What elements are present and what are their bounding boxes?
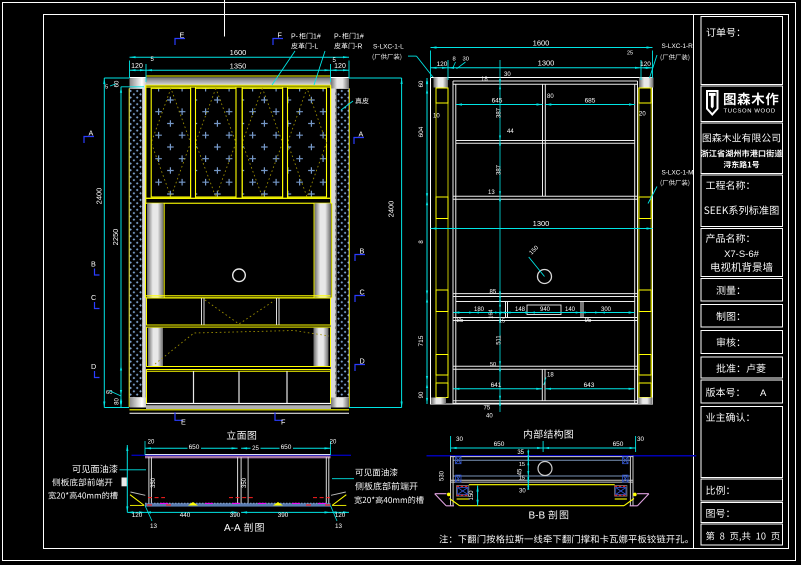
svg-text:604: 604 [418, 126, 425, 137]
svg-text:X7-S-6#: X7-S-6# [724, 249, 760, 260]
svg-text:1350: 1350 [230, 62, 247, 71]
svg-text:387: 387 [497, 164, 503, 175]
svg-text:75: 75 [484, 406, 491, 412]
svg-text:S-LXC-1-R: S-LXC-1-R [662, 43, 694, 50]
svg-text:44: 44 [507, 129, 514, 135]
svg-text:1#: 1# [356, 34, 364, 41]
svg-text:85: 85 [457, 318, 464, 324]
svg-text:2250: 2250 [111, 229, 120, 246]
svg-text:40: 40 [486, 414, 493, 420]
svg-text:25: 25 [627, 51, 633, 57]
svg-text:10: 10 [433, 114, 440, 120]
svg-text:1#: 1# [313, 34, 321, 41]
svg-text:A: A [359, 129, 364, 138]
svg-text:-R: -R [355, 44, 362, 51]
svg-text:P-: P- [334, 34, 342, 41]
svg-text:85: 85 [490, 290, 497, 296]
svg-text:60: 60 [419, 80, 425, 87]
svg-text:18: 18 [547, 373, 554, 379]
svg-text:B: B [360, 246, 365, 255]
svg-text:80: 80 [547, 94, 554, 100]
svg-text:390: 390 [278, 512, 289, 519]
svg-text:650: 650 [613, 441, 624, 448]
svg-text:8: 8 [453, 57, 456, 63]
svg-text:13: 13 [150, 523, 158, 530]
svg-text:95: 95 [585, 318, 592, 324]
svg-text:5: 5 [105, 85, 108, 91]
svg-text:20: 20 [639, 112, 646, 118]
svg-text:TUCSON WOOD: TUCSON WOOD [724, 109, 776, 115]
svg-text:13: 13 [488, 190, 495, 196]
svg-text:1600: 1600 [533, 39, 550, 48]
svg-text:150: 150 [469, 490, 475, 501]
svg-text:C: C [91, 293, 96, 302]
svg-text:D: D [91, 362, 96, 371]
svg-text:30: 30 [637, 436, 645, 443]
svg-text:120: 120 [640, 61, 651, 68]
svg-text:120: 120 [131, 63, 143, 70]
svg-text:15: 15 [519, 462, 525, 468]
svg-text:30: 30 [504, 72, 511, 78]
svg-text:120: 120 [437, 61, 448, 68]
svg-text:650: 650 [281, 444, 292, 451]
svg-text:2400: 2400 [95, 188, 104, 205]
svg-text:715: 715 [418, 335, 425, 346]
svg-text:511: 511 [497, 335, 503, 345]
svg-text:A: A [760, 388, 767, 399]
svg-text:45: 45 [518, 468, 524, 475]
svg-text:120: 120 [132, 512, 143, 519]
svg-text:350: 350 [242, 477, 248, 488]
svg-text:F: F [281, 418, 286, 427]
svg-text:940: 940 [540, 307, 551, 313]
svg-text:645: 645 [492, 98, 503, 105]
svg-text:180: 180 [474, 307, 485, 313]
svg-text:15: 15 [499, 319, 505, 325]
svg-text:B: B [91, 260, 96, 269]
svg-text:-L: -L [312, 44, 318, 51]
svg-text:140: 140 [565, 307, 576, 313]
svg-text:30: 30 [519, 489, 526, 495]
svg-text:25: 25 [252, 446, 259, 452]
svg-text:13: 13 [335, 523, 343, 530]
svg-text:1600: 1600 [230, 48, 247, 57]
svg-text:90: 90 [419, 391, 425, 398]
svg-text:641: 641 [491, 382, 502, 389]
svg-text:F: F [278, 30, 283, 39]
svg-text:C: C [360, 287, 365, 296]
svg-text:B-B: B-B [529, 511, 546, 522]
svg-text:30: 30 [463, 57, 469, 63]
svg-text:387: 387 [497, 107, 503, 118]
svg-text:643: 643 [584, 382, 595, 389]
svg-text:A: A [89, 128, 94, 137]
svg-text:P-: P- [291, 34, 299, 41]
svg-text:650: 650 [189, 444, 200, 451]
svg-text:1300: 1300 [533, 219, 550, 228]
svg-text:15: 15 [519, 476, 525, 482]
svg-text:1300: 1300 [538, 59, 555, 68]
svg-text:E: E [181, 418, 186, 427]
svg-text:530: 530 [440, 470, 446, 481]
svg-text:20: 20 [330, 439, 337, 445]
svg-text:A-A: A-A [224, 523, 241, 534]
svg-text:35: 35 [517, 450, 524, 456]
svg-text:60: 60 [115, 80, 121, 87]
svg-text:D: D [360, 356, 365, 365]
svg-text:685: 685 [585, 98, 596, 105]
svg-text:80: 80 [115, 398, 121, 405]
svg-text:S-LXC-1-M: S-LXC-1-M [662, 170, 694, 177]
svg-text:120: 120 [334, 63, 346, 70]
svg-text:148: 148 [515, 307, 526, 313]
svg-text:S-LXC-1-L: S-LXC-1-L [373, 44, 404, 51]
svg-text:18: 18 [481, 77, 488, 83]
svg-text:120: 120 [335, 512, 346, 519]
svg-text:2400: 2400 [387, 201, 396, 218]
svg-text:164: 164 [489, 309, 495, 318]
svg-text:350: 350 [151, 477, 157, 488]
svg-text:50: 50 [490, 362, 496, 368]
svg-text:440: 440 [180, 512, 191, 519]
svg-text:E: E [180, 30, 185, 39]
svg-text:30: 30 [456, 436, 464, 443]
svg-text:20: 20 [148, 439, 155, 445]
svg-text:390: 390 [230, 512, 241, 519]
svg-text:300: 300 [601, 307, 612, 313]
svg-text:650: 650 [494, 441, 505, 448]
